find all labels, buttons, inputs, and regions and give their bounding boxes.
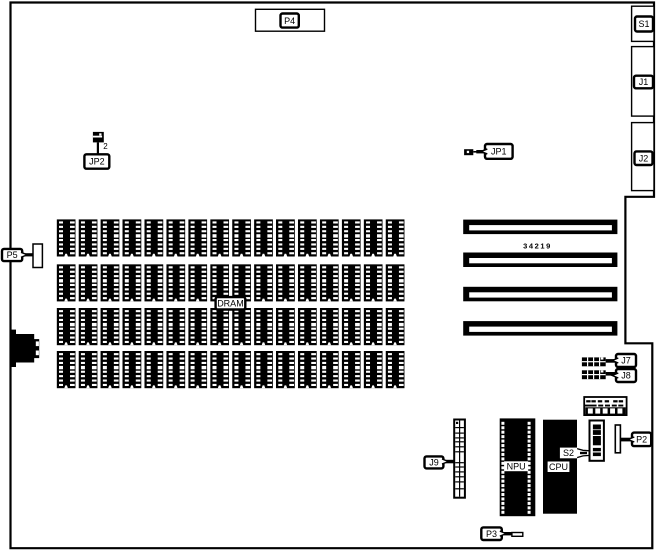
svg-text:P3: P3 [486, 529, 497, 539]
svg-text:CPU: CPU [549, 462, 568, 472]
svg-text:JP1: JP1 [491, 147, 507, 157]
svg-text:NPU: NPU [507, 461, 526, 471]
svg-text:S2: S2 [563, 448, 574, 458]
svg-text:J1: J1 [639, 77, 649, 87]
svg-text:JP2: JP2 [89, 157, 105, 167]
svg-text:DRAM: DRAM [217, 299, 244, 309]
svg-text:P5: P5 [7, 250, 18, 260]
svg-text:J9: J9 [429, 458, 439, 468]
svg-text:J8: J8 [621, 371, 631, 381]
svg-text:2: 2 [103, 142, 108, 151]
svg-text:P2: P2 [636, 435, 647, 445]
svg-text:J7: J7 [621, 356, 631, 366]
svg-text:34219: 34219 [523, 241, 552, 250]
svg-text:P4: P4 [284, 16, 295, 26]
svg-text:S1: S1 [638, 19, 649, 29]
svg-text:J2: J2 [639, 153, 649, 163]
